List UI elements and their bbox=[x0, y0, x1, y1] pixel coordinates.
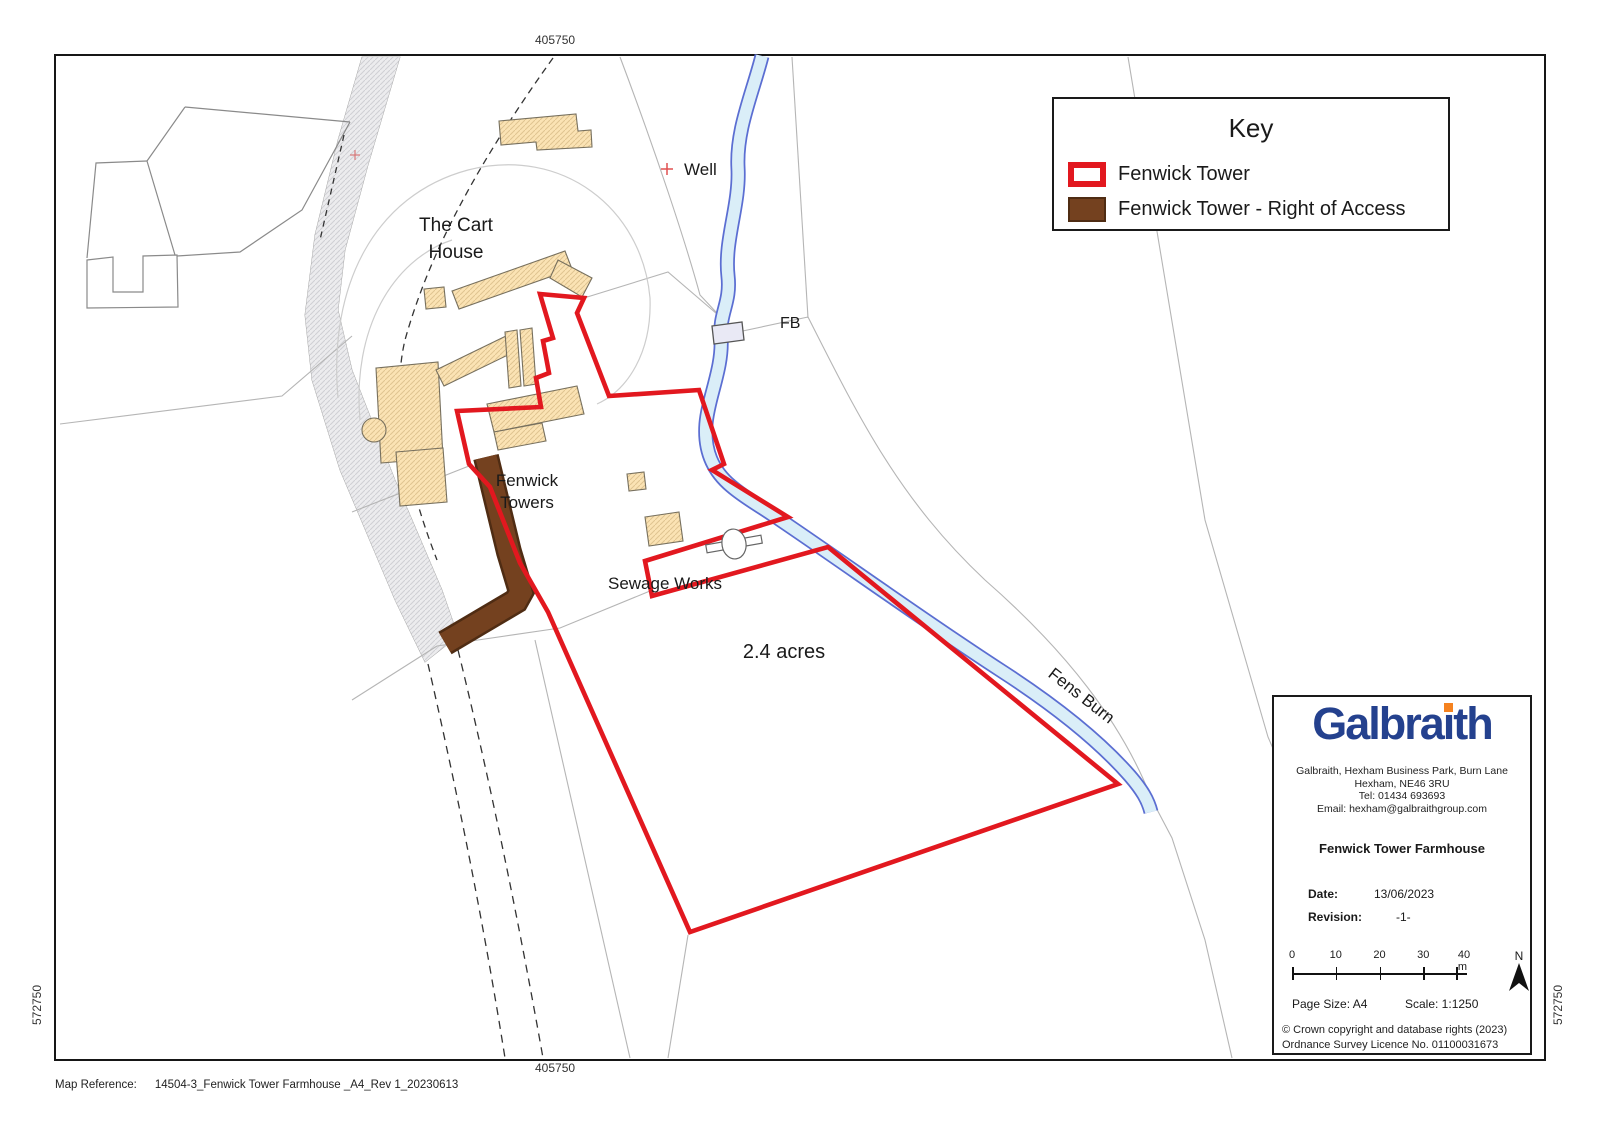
legend-item-right-of-access: Fenwick Tower - Right of Access bbox=[1068, 197, 1406, 222]
north-arrow: N bbox=[1506, 949, 1532, 998]
date-value: 13/06/2023 bbox=[1374, 887, 1434, 901]
label-acreage: 2.4 acres bbox=[743, 641, 825, 663]
galbraith-logo: Galbraıth bbox=[1274, 701, 1530, 746]
legend-label: Fenwick Tower bbox=[1118, 163, 1250, 186]
legend-label: Fenwick Tower - Right of Access bbox=[1118, 198, 1406, 221]
grid-coord-right: 572750 bbox=[1551, 982, 1565, 1028]
label-fenwick-towers-line1: Fenwick bbox=[496, 471, 559, 490]
label-well: Well bbox=[684, 160, 717, 179]
legend-item-fenwick-tower: Fenwick Tower bbox=[1068, 162, 1250, 187]
revision-value: -1- bbox=[1396, 910, 1411, 924]
label-fb: FB bbox=[780, 315, 800, 332]
scale-bar: 0 10 20 30 40 m bbox=[1292, 949, 1467, 995]
label-cart-house-line2: House bbox=[429, 242, 484, 263]
page-size: Page Size: A4 bbox=[1292, 997, 1367, 1011]
label-cart-house-line1: The Cart bbox=[419, 215, 494, 236]
legend-key-box: Key Fenwick Tower Fenwick Tower - Right … bbox=[1052, 97, 1450, 231]
logo-orange-dot-icon bbox=[1444, 703, 1453, 712]
map-reference: Map Reference:14504-3_Fenwick Tower Farm… bbox=[55, 1079, 458, 1091]
legend-swatch-brown-fill bbox=[1068, 197, 1106, 222]
legend-swatch-red-outline bbox=[1068, 162, 1106, 187]
map-scale: Scale: 1:1250 bbox=[1405, 997, 1478, 1011]
revision-row: Revision:-1- bbox=[1308, 910, 1362, 924]
legend-title: Key bbox=[1054, 113, 1448, 144]
title-block-panel: Galbraıth Galbraith, Hexham Business Par… bbox=[1272, 695, 1532, 1055]
plan-title: Fenwick Tower Farmhouse bbox=[1274, 841, 1530, 856]
north-arrow-icon bbox=[1507, 963, 1531, 993]
footbridge bbox=[712, 322, 744, 344]
grid-coord-top: 405750 bbox=[535, 33, 575, 47]
date-row: Date:13/06/2023 bbox=[1308, 887, 1338, 901]
label-sewage-works: Sewage Works bbox=[608, 574, 722, 593]
grid-coord-bottom: 405750 bbox=[535, 1061, 575, 1075]
copyright-note: © Crown copyright and database rights (2… bbox=[1282, 1023, 1526, 1053]
label-fenwick-towers-line2: Towers bbox=[500, 493, 554, 512]
office-address: Galbraith, Hexham Business Park, Burn La… bbox=[1274, 765, 1530, 815]
grid-coord-left: 572750 bbox=[30, 982, 44, 1028]
